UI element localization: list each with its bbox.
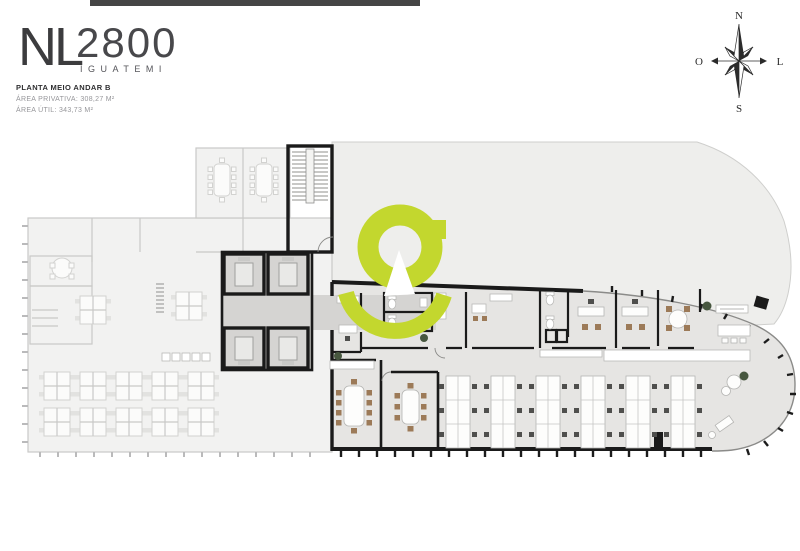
faded-pantry-counter <box>162 353 210 361</box>
round-meeting-room <box>666 306 690 331</box>
floor-plan <box>0 0 800 551</box>
